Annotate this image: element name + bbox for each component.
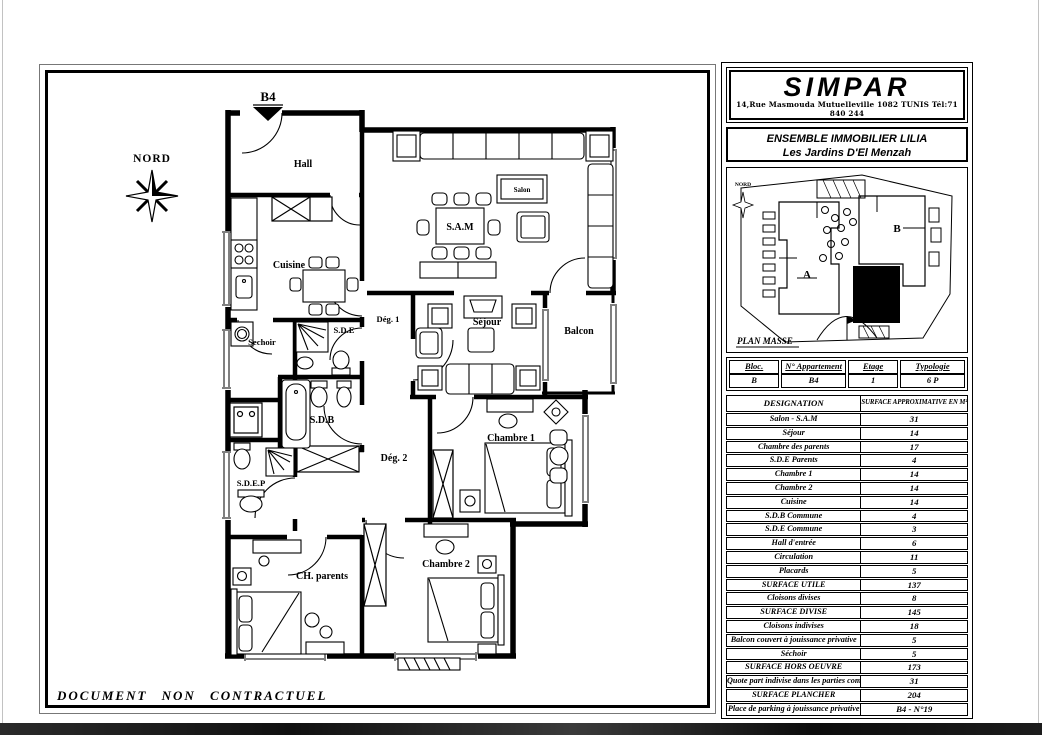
- room-label-sam: S.A.M: [446, 222, 474, 233]
- surface-row-label: Chambre 1: [727, 469, 861, 480]
- room-label-hall: Hall: [294, 159, 313, 170]
- surface-table-row: Cloisons indivises 18: [726, 620, 968, 633]
- highlighted-unit: [853, 266, 900, 323]
- project-box: ENSEMBLE IMMOBILIER LILIA Les Jardins D'…: [726, 127, 968, 162]
- surface-row-value: 3: [861, 524, 967, 535]
- site-plan-title: PLAN MASSE: [737, 336, 793, 346]
- surface-row-value: 173: [861, 662, 967, 673]
- surface-row-label: Quote part indivise dans les parties com…: [727, 676, 861, 687]
- surface-row-value: 6: [861, 538, 967, 549]
- unit-info-value-bloc: B: [729, 374, 779, 388]
- surface-table-row: Hall d'entrée 6: [726, 537, 968, 550]
- unit-label: B4: [260, 89, 276, 104]
- surface-row-label: Place de parking à jouissance privative: [727, 704, 861, 715]
- surface-row-label: SURFACE HORS OEUVRE: [727, 662, 861, 673]
- surface-row-value: 5: [861, 566, 967, 577]
- room-label-salon: Salon: [514, 186, 531, 194]
- surface-table-row: Place de parking à jouissance privative …: [726, 703, 968, 716]
- surface-row-value: B4 - N°19: [861, 704, 967, 715]
- surface-table-row: Quote part indivise dans les parties com…: [726, 675, 968, 688]
- building-a-label: A: [803, 269, 811, 281]
- surface-row-label: Séjour: [727, 428, 861, 439]
- site-plan-map: NORD A B PLAN MASSE: [727, 168, 965, 350]
- room-label-chambre1: Chambre 1: [487, 433, 535, 444]
- unit-info-header-bloc: Bloc.: [729, 360, 779, 374]
- surface-row-value: 14: [861, 497, 967, 508]
- unit-info-header-etage: Etage: [848, 360, 898, 374]
- surface-row-label: Balcon couvert à jouissance privative: [727, 635, 861, 646]
- surface-row-value: 14: [861, 469, 967, 480]
- surface-row-label: Placards: [727, 566, 861, 577]
- building-b-label: B: [893, 223, 901, 235]
- surface-row-label: S.D.E Parents: [727, 455, 861, 466]
- surface-table-row: Chambre 2 14: [726, 482, 968, 495]
- surface-row-value: 31: [861, 414, 967, 425]
- surface-table-row: Placards 5: [726, 565, 968, 578]
- unit-info-value-typologie: 6 P: [900, 374, 965, 388]
- surface-row-value: 4: [861, 511, 967, 522]
- surface-table-row: S.D.E Parents 4: [726, 454, 968, 467]
- surface-table-row: SURFACE PLANCHER 204: [726, 689, 968, 702]
- surface-row-label: Cloisons indivises: [727, 621, 861, 632]
- surface-header-designation: DESIGNATION: [727, 396, 861, 411]
- room-label-sdb: S.D.B: [310, 415, 335, 426]
- brand-address: 14,Rue Masmouda Mutuelleville 1082 TUNIS…: [731, 100, 963, 118]
- room-label-sdep: S.D.E.P: [237, 478, 265, 488]
- surface-row-label: Séchoir: [727, 649, 861, 660]
- surface-row-value: 18: [861, 621, 967, 632]
- surface-row-value: 145: [861, 607, 967, 618]
- surface-row-value: 17: [861, 442, 967, 453]
- surface-table-row: Balcon couvert à jouissance privative 5: [726, 634, 968, 647]
- compass-north-icon: [126, 170, 178, 222]
- surface-row-label: Chambre des parents: [727, 442, 861, 453]
- room-label-deg1: Dég. 1: [377, 314, 400, 324]
- surface-row-label: SURFACE PLANCHER: [727, 690, 861, 701]
- surface-table-row: Chambre 1 14: [726, 468, 968, 481]
- surface-row-label: S.D.B Commune: [727, 511, 861, 522]
- room-label-balcon: Balcon: [564, 326, 594, 337]
- surface-row-value: 14: [861, 483, 967, 494]
- surface-table-row: Salon - S.A.M 31: [726, 413, 968, 426]
- room-label-deg2: Dég. 2: [381, 453, 408, 464]
- unit-info-header-typologie: Typologie: [900, 360, 965, 374]
- surface-row-label: S.D.E Commune: [727, 524, 861, 535]
- project-name: ENSEMBLE IMMOBILIER LILIA: [728, 132, 966, 146]
- room-label-chambre2: Chambre 2: [422, 559, 470, 570]
- title-block: SIMPAR 14,Rue Masmouda Mutuelleville 108…: [721, 62, 973, 719]
- surface-table-row: Chambre des parents 17: [726, 441, 968, 454]
- project-subname: Les Jardins D'El Menzah: [728, 146, 966, 160]
- surface-table-row: SURFACE HORS OEUVRE 173: [726, 661, 968, 674]
- surface-table-row: Cuisine 14: [726, 496, 968, 509]
- document-page: B4 NORD Hall Cuisine Salon S.A.M Séjour …: [0, 0, 1042, 735]
- surface-row-value: 4: [861, 455, 967, 466]
- surface-table-row: Séjour 14: [726, 427, 968, 440]
- surface-row-label: Cloisons divises: [727, 593, 861, 604]
- site-compass-icon: [733, 192, 753, 218]
- surface-table-row: Séchoir 5: [726, 648, 968, 661]
- surface-row-value: 31: [861, 676, 967, 687]
- room-label-sechoir: Sechoir: [248, 337, 276, 347]
- surface-row-value: 5: [861, 635, 967, 646]
- room-label-sejour: Séjour: [473, 317, 502, 328]
- surface-row-value: 8: [861, 593, 967, 604]
- surface-row-value: 11: [861, 552, 967, 563]
- footer-note: DOCUMENT NON CONTRACTUEL: [57, 688, 327, 704]
- surface-table-row: SURFACE UTILE 137: [726, 579, 968, 592]
- surface-row-label: Cuisine: [727, 497, 861, 508]
- surface-table-body: Salon - S.A.M 31 Séjour 14 Chambre des p…: [726, 412, 968, 716]
- surface-row-label: Chambre 2: [727, 483, 861, 494]
- room-label-sde: S.D.E: [333, 325, 354, 335]
- surface-row-label: SURFACE UTILE: [727, 580, 861, 591]
- room-label-cuisine: Cuisine: [273, 260, 306, 271]
- site-plan-box: NORD A B PLAN MASSE: [726, 167, 968, 353]
- surface-row-value: 204: [861, 690, 967, 701]
- surface-row-label: SURFACE DIVISE: [727, 607, 861, 618]
- surface-row-value: 5: [861, 649, 967, 660]
- surface-table-row: Cloisons divises 8: [726, 592, 968, 605]
- surface-row-label: Hall d'entrée: [727, 538, 861, 549]
- surface-row-label: Salon - S.A.M: [727, 414, 861, 425]
- unit-info-header-appartement: N° Appartement: [781, 360, 846, 374]
- unit-info-value-appartement: B4: [781, 374, 846, 388]
- surface-table: DESIGNATION SURFACE APPROXIMATIVE EN M² …: [726, 395, 968, 716]
- unit-info-table: Bloc. N° Appartement Etage Typologie B B…: [726, 357, 968, 391]
- surface-table-row: S.D.E Commune 3: [726, 523, 968, 536]
- surface-table-row: SURFACE DIVISE 145: [726, 606, 968, 619]
- surface-row-label: Circulation: [727, 552, 861, 563]
- surface-table-row: S.D.B Commune 4: [726, 510, 968, 523]
- room-label-ch-parents: CH. parents: [296, 571, 348, 582]
- site-north-label: NORD: [735, 182, 751, 188]
- surface-table-row: Circulation 11: [726, 551, 968, 564]
- surface-table-header: DESIGNATION SURFACE APPROXIMATIVE EN M²: [726, 395, 968, 412]
- brand-box: SIMPAR 14,Rue Masmouda Mutuelleville 108…: [726, 67, 968, 123]
- brand-logo: SIMPAR: [731, 74, 963, 100]
- surface-header-surface: SURFACE APPROXIMATIVE EN M²: [861, 396, 967, 411]
- surface-row-value: 14: [861, 428, 967, 439]
- unit-info-value-etage: 1: [848, 374, 898, 388]
- north-label: NORD: [133, 153, 171, 165]
- surface-row-value: 137: [861, 580, 967, 591]
